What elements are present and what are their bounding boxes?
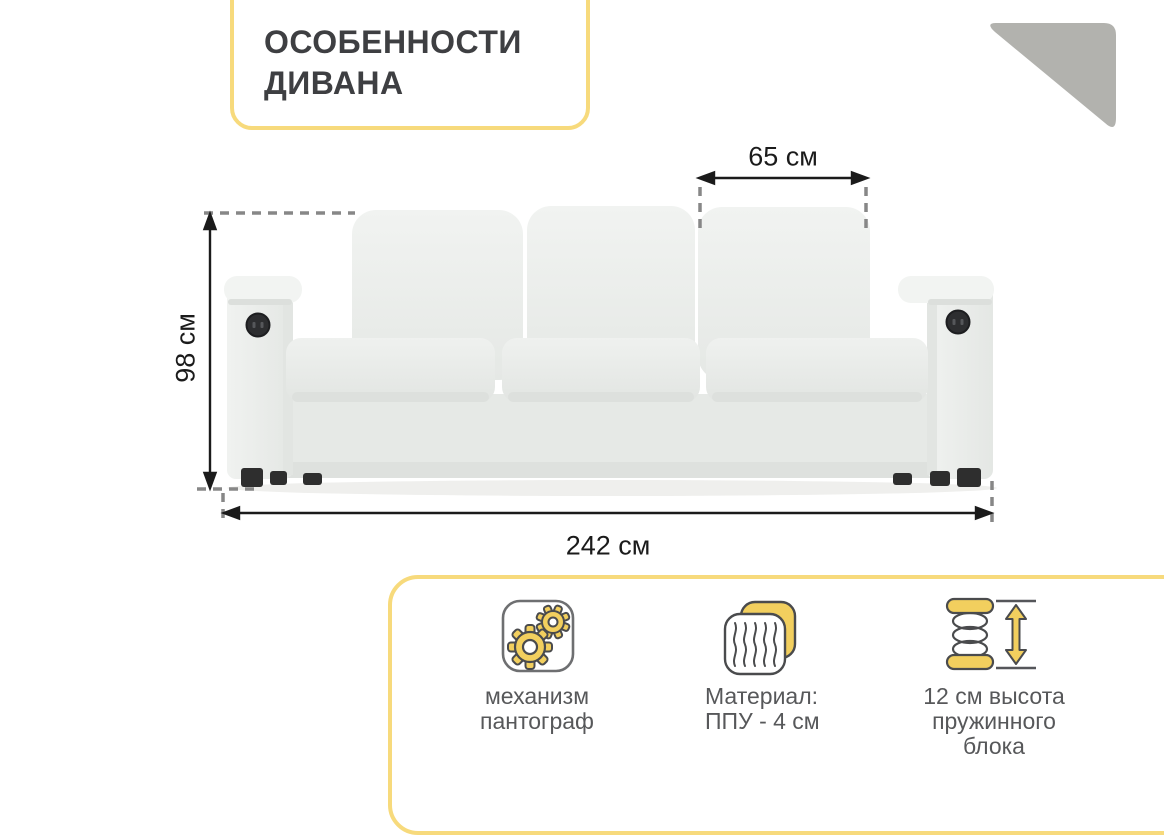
feature-label-mechanism: механизм пантограф [480, 684, 594, 734]
foam-layers-icon [725, 602, 795, 674]
dimension-height: 98 см [171, 313, 202, 383]
feature-label-material: Материал: ППУ - 4 см [705, 684, 820, 734]
dimension-cushion-width: 65 см [748, 142, 818, 173]
gears-icon [503, 601, 573, 671]
feature-label-spring: 12 см высота пружинного блока [923, 684, 1065, 759]
sofa-photo [224, 206, 997, 496]
spring-height-icon [947, 599, 1036, 669]
armrest-outlet-left [247, 314, 270, 337]
armrest-outlet-right [947, 311, 970, 334]
dimension-total-width: 242 см [566, 531, 651, 562]
corner-triangle [990, 23, 1116, 127]
infographic-artwork [0, 0, 1164, 776]
height-arrow [1006, 605, 1026, 664]
